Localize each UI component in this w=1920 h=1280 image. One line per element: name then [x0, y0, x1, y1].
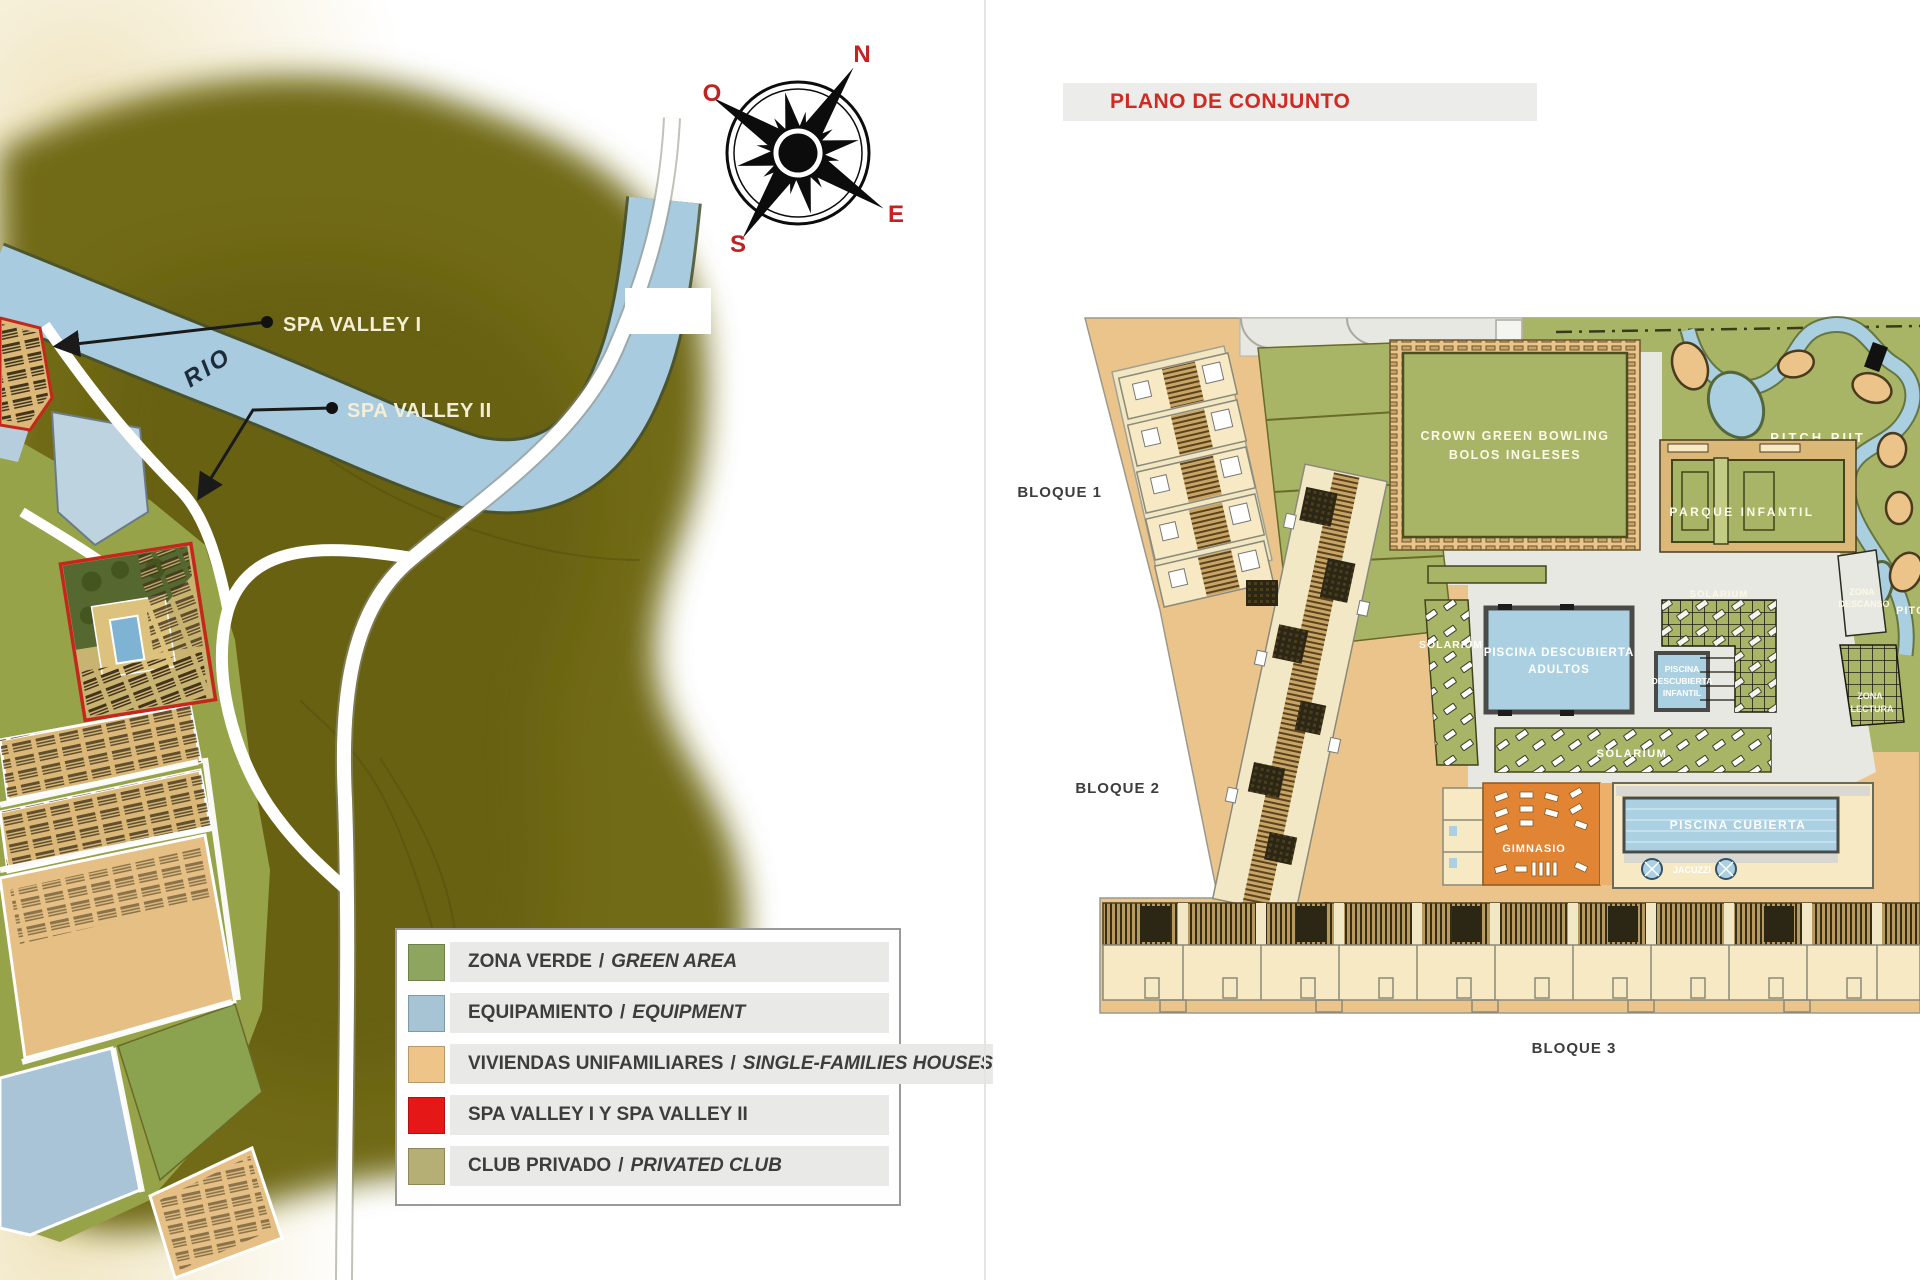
spa-valley-1-label: SPA VALLEY I [283, 314, 422, 336]
legend-separator: / [730, 1053, 735, 1075]
site-plan: PITCH PUT PITCH CROWN GREEN BOWLING BOLO… [984, 0, 1920, 1280]
bloque-2-label: BLOQUE 2 [1075, 780, 1160, 797]
legend-label: SPA VALLEY I Y SPA VALLEY II [450, 1095, 889, 1135]
solarium-west-label: SOLARIUM [1419, 639, 1483, 651]
adult-pool-label-2: ADULTOS [1528, 664, 1590, 676]
pergola-solarium-label: SOLARIUM [1690, 589, 1749, 600]
kids-pool-label-2: DESCUBIERTA [1652, 676, 1713, 686]
legend-row: VIVIENDAS UNIFAMILIARES/SINGLE-FAMILIES … [408, 1044, 889, 1084]
legend-separator: / [620, 1002, 625, 1024]
solarium-south: SOLARIUM [1495, 728, 1771, 772]
legend-label-es: ZONA VERDE [468, 951, 592, 973]
legend-label: CLUB PRIVADO/PRIVATED CLUB [450, 1146, 889, 1186]
crown-bowling-label-2: BOLOS INGLESES [1449, 448, 1581, 462]
compass-rose: N O E S [657, 12, 939, 294]
white-patch [625, 288, 711, 334]
rest-zone-label-2: DESCANSO [1838, 599, 1889, 609]
legend-row: SPA VALLEY I Y SPA VALLEY II [408, 1095, 889, 1135]
adult-pool-label-1: PISCINA DESCUBIERTA [1484, 647, 1635, 659]
reading-zone-label-2: LECTURA [1851, 704, 1894, 714]
legend-row: CLUB PRIVADO/PRIVATED CLUB [408, 1146, 889, 1186]
compass-e: E [888, 201, 904, 228]
playground: PARQUE INFANTIL [1660, 440, 1856, 552]
legend-label-es: SPA VALLEY I Y SPA VALLEY II [468, 1104, 748, 1126]
spa-club-parcel [60, 543, 215, 720]
compass-n: N [853, 41, 870, 68]
legend-swatch [408, 944, 445, 981]
playground-label: PARQUE INFANTIL [1669, 505, 1814, 519]
rest-zone-label-1: ZONA [1849, 587, 1875, 597]
legend-swatch [408, 1097, 445, 1134]
map-legend: ZONA VERDE/GREEN AREAEQUIPAMIENTO/EQUIPM… [395, 928, 901, 1206]
legend-label: EQUIPAMIENTO/EQUIPMENT [450, 993, 889, 1033]
bloque-3 [1103, 903, 1920, 1012]
indoor-pool-label: PISCINA CUBIERTA [1670, 818, 1807, 832]
page-gutter [984, 0, 986, 1280]
crown-bowling-label-1: CROWN GREEN BOWLING [1421, 429, 1610, 443]
compass-s: S [730, 231, 746, 258]
club-pool [110, 616, 145, 664]
legend-row: ZONA VERDE/GREEN AREA [408, 942, 889, 982]
legend-label: ZONA VERDE/GREEN AREA [450, 942, 889, 982]
plan-title-bar: PLANO DE CONJUNTO [1063, 83, 1537, 121]
bloque-3-label: BLOQUE 3 [1532, 1040, 1617, 1057]
legend-label-en: SINGLE-FAMILIES HOUSES [743, 1053, 993, 1075]
legend-swatch [408, 1046, 445, 1083]
spa-valley-2-label: SPA VALLEY II [347, 400, 492, 422]
compass-o: O [703, 80, 722, 107]
legend-label-es: EQUIPAMIENTO [468, 1002, 613, 1024]
legend-swatch [408, 995, 445, 1032]
pergola-square [1246, 580, 1278, 606]
reading-zone: ZONA LECTURA [1840, 645, 1904, 726]
legend-label: VIVIENDAS UNIFAMILIARES/SINGLE-FAMILIES … [450, 1044, 993, 1084]
legend-label-es: VIVIENDAS UNIFAMILIARES [468, 1053, 723, 1075]
kids-pool: PISCINA DESCUBIERTA INFANTIL [1652, 653, 1713, 710]
adult-pool: PISCINA DESCUBIERTA ADULTOS [1484, 604, 1635, 716]
legend-swatch [408, 1148, 445, 1185]
legend-label-en: EQUIPMENT [632, 1002, 745, 1024]
brochure-page: { "left_map": { "compass": {"n": "N", "e… [0, 0, 1920, 1280]
solarium-south-label: SOLARIUM [1597, 748, 1668, 760]
jacuzzi-label: JACUZZI [1673, 865, 1711, 875]
gym-label: GIMNASIO [1502, 843, 1566, 855]
kids-pool-label-1: PISCINA [1665, 664, 1699, 674]
legend-label-en: GREEN AREA [611, 951, 737, 973]
pitch-edge-label: PITCH [1896, 605, 1920, 617]
legend-label-en: PRIVATED CLUB [631, 1155, 782, 1177]
reading-zone-label-1: ZONA [1857, 691, 1883, 701]
bloque-1-label: BLOQUE 1 [1017, 484, 1102, 501]
hedge [1428, 566, 1546, 583]
kids-pool-label-3: INFANTIL [1663, 688, 1701, 698]
plan-title: PLANO DE CONJUNTO [1063, 90, 1350, 114]
spa-building: GIMNASIO PISCINA CUBIERTA JACUZZI [1443, 783, 1873, 888]
legend-separator: / [599, 951, 604, 973]
legend-label-es: CLUB PRIVADO [468, 1155, 611, 1177]
bowling-green: CROWN GREEN BOWLING BOLOS INGLESES [1390, 340, 1640, 550]
legend-separator: / [618, 1155, 623, 1177]
legend-row: EQUIPAMIENTO/EQUIPMENT [408, 993, 889, 1033]
